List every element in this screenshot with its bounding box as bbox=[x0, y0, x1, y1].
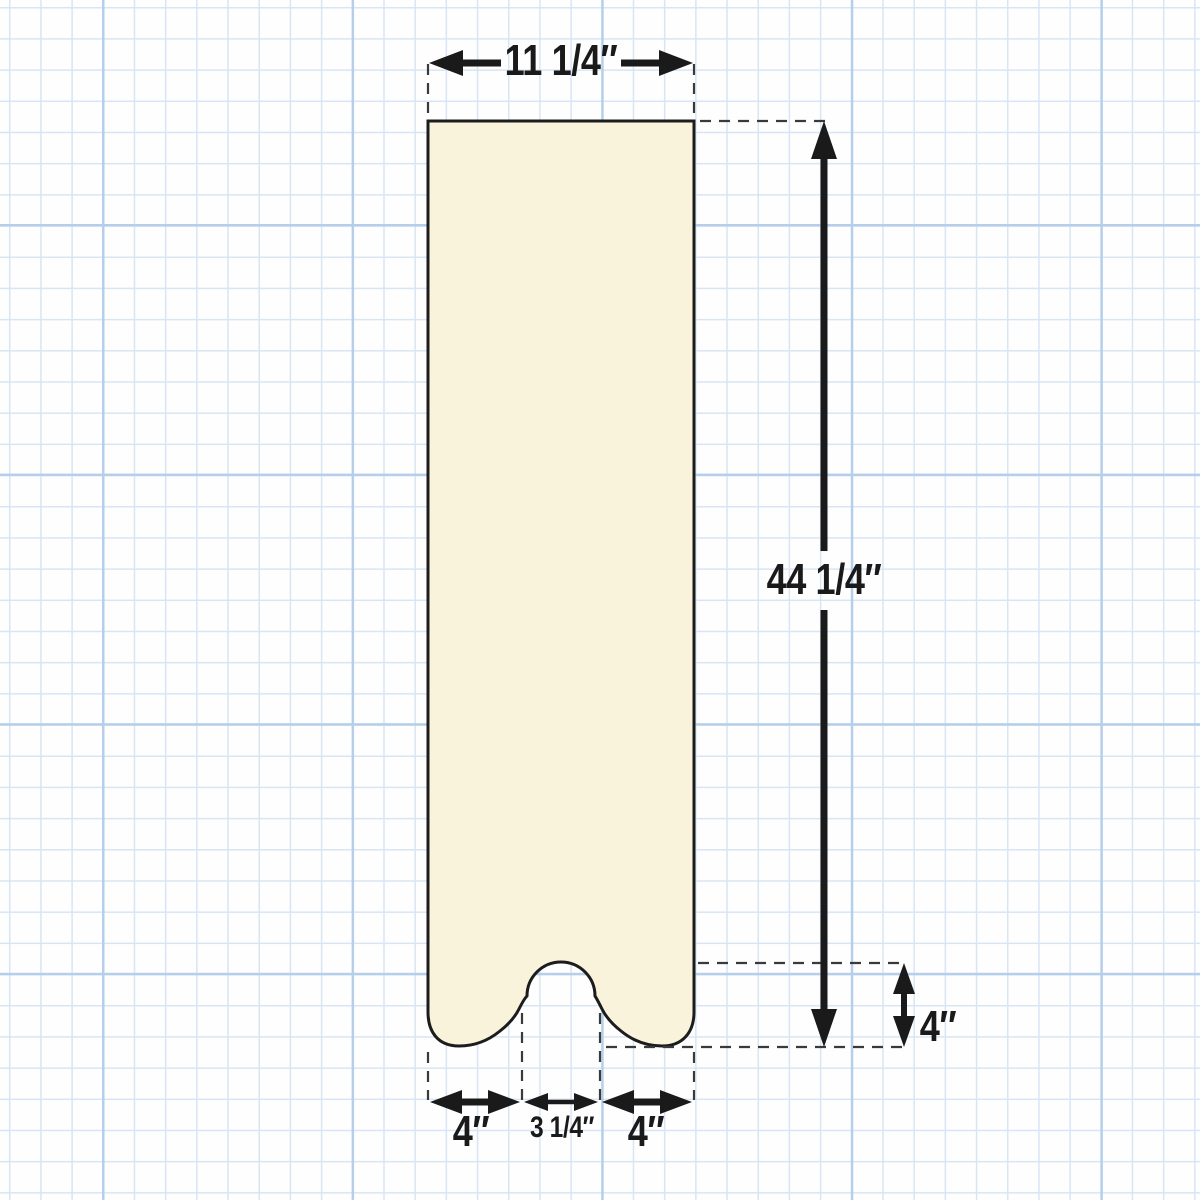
arrowhead-right-icon bbox=[659, 50, 693, 76]
arrowhead-down-icon bbox=[893, 1016, 915, 1047]
arrowhead-right-icon bbox=[660, 1090, 692, 1114]
dim-label-bottom-right-foot: 4″ bbox=[628, 1110, 665, 1154]
graph-paper-canvas: 11 1/4″ 44 1/4″ 4″ 4″ 3 1/4″ 4″ bbox=[0, 0, 1200, 1200]
dim-label-top-width: 11 1/4″ bbox=[505, 39, 618, 83]
arrowhead-right-icon bbox=[488, 1090, 520, 1114]
arrowhead-right-icon bbox=[574, 1093, 598, 1111]
arrowhead-left-icon bbox=[429, 50, 463, 76]
cut-diagram bbox=[0, 0, 1200, 1200]
dimension-foot-height bbox=[893, 963, 915, 1047]
dimension-bottom-center-notch bbox=[524, 1093, 598, 1111]
dim-label-bottom-center-notch: 3 1/4″ bbox=[530, 1113, 594, 1143]
arrowhead-down-icon bbox=[811, 1009, 837, 1047]
board-shape bbox=[428, 121, 694, 1046]
dim-label-right-height: 44 1/4″ bbox=[767, 558, 882, 602]
dim-label-bottom-left-foot: 4″ bbox=[453, 1110, 490, 1154]
dim-label-foot-height: 4″ bbox=[920, 1005, 957, 1049]
board bbox=[428, 121, 694, 1046]
